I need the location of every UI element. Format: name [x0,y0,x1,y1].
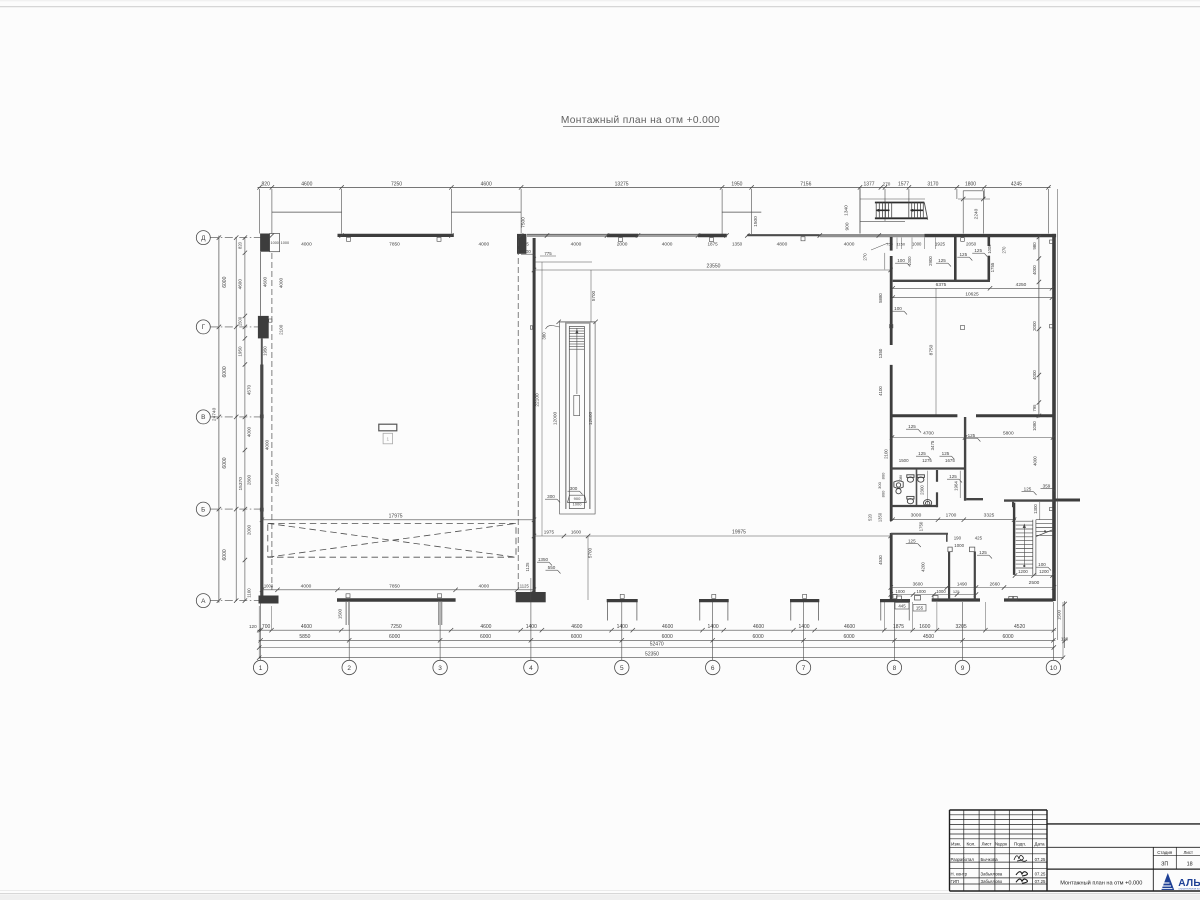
svg-text:10625: 10625 [965,291,979,297]
svg-text:100: 100 [897,258,905,263]
svg-text:2: 2 [347,665,351,672]
svg-text:125: 125 [942,451,950,456]
svg-text:4800: 4800 [777,241,788,247]
svg-text:2900: 2900 [928,256,933,266]
svg-text:2300: 2300 [920,485,925,495]
svg-text:1875: 1875 [707,241,718,246]
svg-text:15550: 15550 [275,473,281,487]
svg-text:Изм.: Изм. [951,842,961,847]
svg-text:1340: 1340 [844,205,850,216]
svg-text:6000: 6000 [222,366,228,377]
svg-text:6375: 6375 [936,282,947,288]
svg-text:2500: 2500 [1029,580,1040,586]
svg-text:4245: 4245 [1011,182,1022,188]
svg-text:4000: 4000 [478,241,489,247]
svg-text:Разработал: Разработал [951,857,975,862]
svg-text:4600: 4600 [263,276,268,287]
svg-text:700: 700 [262,624,271,630]
svg-text:120: 120 [1061,637,1069,642]
svg-text:775: 775 [544,251,552,256]
svg-text:18: 18 [1187,862,1193,868]
svg-text:800: 800 [881,490,886,497]
svg-text:4570: 4570 [247,384,252,395]
svg-text:125: 125 [968,433,976,438]
svg-text:4600: 4600 [662,624,673,630]
svg-text:Д: Д [201,235,206,242]
svg-text:1700: 1700 [946,513,957,519]
svg-text:1377: 1377 [863,182,874,188]
svg-text:1500: 1500 [899,458,909,463]
svg-text:1400: 1400 [798,624,809,630]
svg-text:900: 900 [574,496,581,501]
svg-text:300: 300 [547,494,555,499]
svg-text:1000: 1000 [936,589,946,594]
svg-text:4600: 4600 [844,624,855,630]
svg-text:1150: 1150 [896,241,905,246]
svg-text:4530: 4530 [878,555,883,565]
svg-text:7: 7 [802,665,806,672]
svg-text:1300: 1300 [1033,504,1038,514]
svg-text:4600: 4600 [301,624,312,630]
svg-text:820: 820 [262,182,271,188]
svg-text:550: 550 [548,565,556,570]
svg-text:9: 9 [961,665,965,672]
svg-text:445: 445 [898,604,906,609]
svg-text:24740: 24740 [212,407,218,421]
svg-text:1350: 1350 [878,348,883,358]
svg-text:1080: 1080 [1032,421,1037,431]
svg-text:1950: 1950 [238,346,243,357]
svg-text:4100: 4100 [878,386,883,396]
svg-text:4700: 4700 [923,431,934,437]
svg-text:19975: 19975 [732,530,746,536]
svg-text:Лист: Лист [1184,850,1194,855]
svg-text:1755: 1755 [990,262,995,272]
svg-text:155: 155 [916,606,924,611]
svg-text:4200: 4200 [921,562,926,572]
svg-text:300: 300 [570,486,578,491]
svg-text:1000: 1000 [264,584,274,589]
svg-text:1975: 1975 [544,530,555,535]
svg-text:1000: 1000 [954,543,964,548]
svg-text:2000: 2000 [617,241,628,247]
svg-text:1964: 1964 [953,481,958,491]
svg-text:5880: 5880 [878,293,883,303]
svg-text:7500: 7500 [521,217,527,228]
svg-text:4600: 4600 [753,624,764,630]
svg-text:Бычкова: Бычкова [981,857,999,862]
svg-text:1088: 1088 [899,475,903,482]
svg-text:3475: 3475 [930,440,935,450]
svg-text:4000: 4000 [662,241,673,247]
svg-text:125: 125 [979,550,987,555]
svg-text:А: А [201,598,206,605]
svg-text:3000: 3000 [911,513,922,519]
svg-text:7850: 7850 [389,241,400,247]
svg-text:1000: 1000 [917,589,927,594]
svg-text:6000: 6000 [571,634,582,640]
svg-text:07.25: 07.25 [1035,872,1046,877]
svg-text:1000: 1000 [896,589,906,594]
svg-text:1000: 1000 [573,502,583,507]
svg-text:4000: 4000 [247,426,252,437]
svg-text:2800: 2800 [247,474,252,485]
svg-text:820: 820 [238,241,243,249]
svg-text:7850: 7850 [389,584,400,590]
svg-text:4600: 4600 [481,182,492,188]
svg-text:12000: 12000 [553,412,559,426]
svg-text:10: 10 [1050,665,1058,672]
svg-text:270: 270 [863,253,868,261]
svg-text:125: 125 [938,258,946,263]
svg-text:4250: 4250 [1016,282,1027,288]
svg-text:5700: 5700 [591,290,596,301]
svg-text:строительная компания: строительная компания [1179,887,1200,891]
svg-text:3600: 3600 [913,581,924,586]
svg-text:1500: 1500 [753,216,759,227]
svg-text:4000: 4000 [1032,370,1037,380]
svg-text:4000: 4000 [279,277,284,288]
svg-text:1350: 1350 [732,241,743,246]
svg-text:1400: 1400 [708,624,719,630]
svg-text:1950: 1950 [263,346,268,356]
svg-text:190: 190 [954,536,962,541]
svg-text:3170: 3170 [927,182,938,188]
svg-text:1750: 1750 [918,521,923,531]
svg-text:1950: 1950 [731,182,742,188]
svg-text:4600: 4600 [480,624,491,630]
svg-text:125: 125 [974,248,982,253]
svg-text:750: 750 [886,241,893,246]
svg-text:13275: 13275 [615,182,629,188]
svg-text:6000: 6000 [843,634,854,640]
svg-text:Б: Б [201,506,205,513]
svg-text:795: 795 [1032,404,1037,412]
svg-text:В: В [201,414,205,421]
svg-text:Забьялово: Забьялово [981,879,1003,884]
svg-text:1000: 1000 [987,244,992,254]
svg-text:6000: 6000 [662,634,673,640]
svg-text:Подп.: Подп. [1014,842,1026,847]
svg-text:Лист: Лист [982,842,993,847]
svg-text:3: 3 [438,665,442,672]
svg-text:5700: 5700 [588,547,593,558]
svg-text:8: 8 [893,665,897,672]
svg-text:359: 359 [1043,484,1051,489]
svg-text:1125: 1125 [520,584,530,589]
svg-text:100: 100 [523,249,531,254]
svg-text:4600: 4600 [301,182,312,188]
svg-text:6000: 6000 [389,634,400,640]
svg-text:2660: 2660 [990,581,1001,586]
svg-text:1000: 1000 [912,241,922,246]
svg-text:6: 6 [711,665,715,672]
svg-text:1800: 1800 [965,182,976,188]
svg-text:15370: 15370 [238,477,244,491]
svg-text:980: 980 [1032,242,1037,250]
svg-text:Стадия: Стадия [1157,850,1173,855]
svg-text:5: 5 [620,665,624,672]
svg-text:12600: 12600 [588,412,594,426]
svg-text:Дата: Дата [1034,842,1045,847]
svg-text:4000: 4000 [265,439,270,450]
svg-text:5850: 5850 [299,634,310,640]
svg-text:125: 125 [959,252,967,257]
svg-text:Монтажный план на отм +0.000: Монтажный план на отм +0.000 [1060,880,1142,887]
svg-text:Забьялова: Забьялова [981,872,1003,877]
svg-text:1500: 1500 [1057,609,1062,620]
svg-text:900: 900 [845,222,851,230]
svg-text:1125: 1125 [520,241,530,246]
svg-text:1490: 1490 [957,581,968,586]
svg-text:52350: 52350 [645,651,659,657]
svg-text:6000: 6000 [753,634,764,640]
svg-text:6000: 6000 [222,457,228,468]
svg-text:4000: 4000 [571,241,582,247]
svg-text:520: 520 [868,513,873,521]
svg-text:1577: 1577 [898,182,909,188]
svg-text:270: 270 [883,182,891,187]
svg-text:270: 270 [1002,246,1007,254]
svg-text:17975: 17975 [389,513,403,519]
svg-text:6000: 6000 [222,276,228,287]
svg-text:ЗП: ЗП [1161,862,1168,868]
svg-text:2240: 2240 [974,208,980,219]
svg-text:1600: 1600 [571,530,582,535]
svg-text:1125: 1125 [525,562,530,572]
svg-text:4000: 4000 [301,241,312,247]
svg-text:7250: 7250 [391,182,402,188]
svg-text:1875: 1875 [893,624,904,630]
svg-text:2000: 2000 [247,524,252,535]
svg-text:Кол.: Кол. [966,842,975,847]
svg-text:7156: 7156 [800,182,811,188]
svg-text:Н. контр: Н. контр [951,872,968,877]
svg-text:Г: Г [202,324,206,331]
svg-text:22100: 22100 [535,393,541,407]
svg-text:2050: 2050 [966,241,977,246]
svg-text:1000: 1000 [281,241,289,245]
svg-text:1100: 1100 [247,588,252,598]
svg-text:125: 125 [953,589,960,594]
svg-text:4000: 4000 [301,584,312,590]
svg-text:120: 120 [249,624,257,629]
svg-text:4000: 4000 [478,584,489,590]
svg-text:1500: 1500 [238,316,243,326]
svg-text:125: 125 [918,451,926,456]
svg-text:1600: 1600 [919,624,930,630]
svg-text:8750: 8750 [928,344,934,355]
svg-text:1350: 1350 [878,512,883,522]
svg-text:3325: 3325 [984,513,995,519]
svg-text:125: 125 [949,474,957,479]
svg-text:4600: 4600 [238,279,243,290]
svg-text:52470: 52470 [650,641,664,647]
svg-text:ГИП: ГИП [951,879,960,884]
svg-text:4000: 4000 [1032,265,1037,275]
svg-text:2100: 2100 [279,324,284,335]
svg-text:4520: 4520 [1014,624,1025,630]
svg-text:6000: 6000 [480,634,491,640]
svg-text:5800: 5800 [1003,431,1014,437]
svg-text:4: 4 [529,665,533,672]
svg-text:1400: 1400 [617,624,628,630]
svg-text:4000: 4000 [844,241,855,247]
svg-text:125: 125 [1024,487,1032,492]
svg-text:2000: 2000 [1032,321,1037,331]
svg-text:1200: 1200 [1039,569,1049,574]
svg-text:Монтажный план на отм +0.000: Монтажный план на отм +0.000 [561,115,720,126]
svg-text:300: 300 [877,481,882,488]
svg-text:125: 125 [908,539,916,544]
svg-text:125: 125 [908,424,916,429]
svg-text:07.25: 07.25 [1035,879,1046,884]
svg-text:1500: 1500 [338,608,343,619]
svg-text:7250: 7250 [391,624,402,630]
svg-text:100: 100 [1038,562,1046,567]
svg-text:1350: 1350 [538,557,549,562]
svg-text:07.25: 07.25 [1035,857,1046,862]
svg-text:2100: 2100 [884,449,889,459]
svg-text:1: 1 [387,437,390,442]
svg-text:425: 425 [975,536,983,541]
svg-text:800: 800 [881,472,886,479]
svg-text:1925: 1925 [935,241,946,246]
svg-text:6000: 6000 [222,549,228,560]
svg-text:№док: №док [995,842,1008,847]
svg-text:4000: 4000 [1033,456,1038,466]
svg-text:1275: 1275 [922,458,932,463]
svg-text:4500: 4500 [923,634,934,640]
svg-text:100: 100 [894,306,902,311]
svg-text:3205: 3205 [956,624,967,630]
svg-text:6000: 6000 [1002,634,1013,640]
svg-text:1: 1 [259,665,263,672]
svg-text:1000: 1000 [270,241,278,245]
svg-text:1200: 1200 [1018,569,1028,574]
svg-text:4600: 4600 [571,624,582,630]
svg-text:23550: 23550 [707,264,721,270]
svg-text:1400: 1400 [526,624,537,630]
